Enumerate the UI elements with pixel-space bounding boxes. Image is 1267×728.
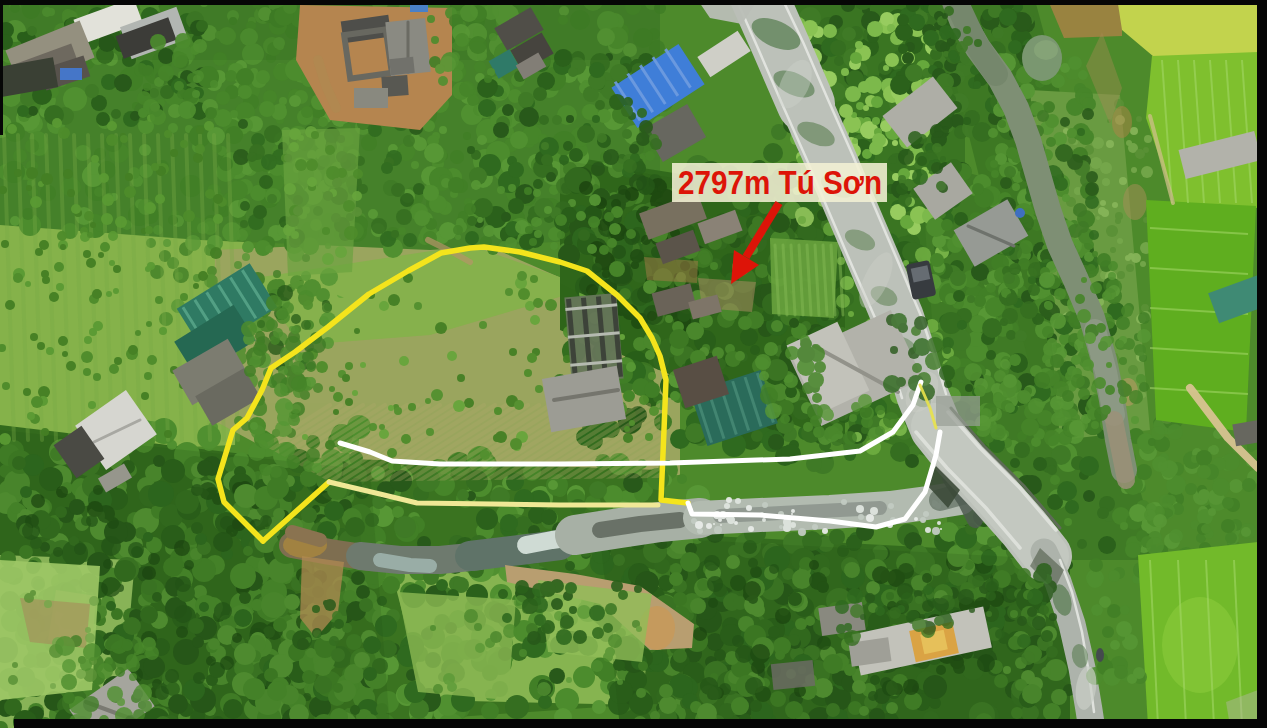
svg-text:2797m Tú Sơn: 2797m Tú Sơn <box>678 164 882 201</box>
